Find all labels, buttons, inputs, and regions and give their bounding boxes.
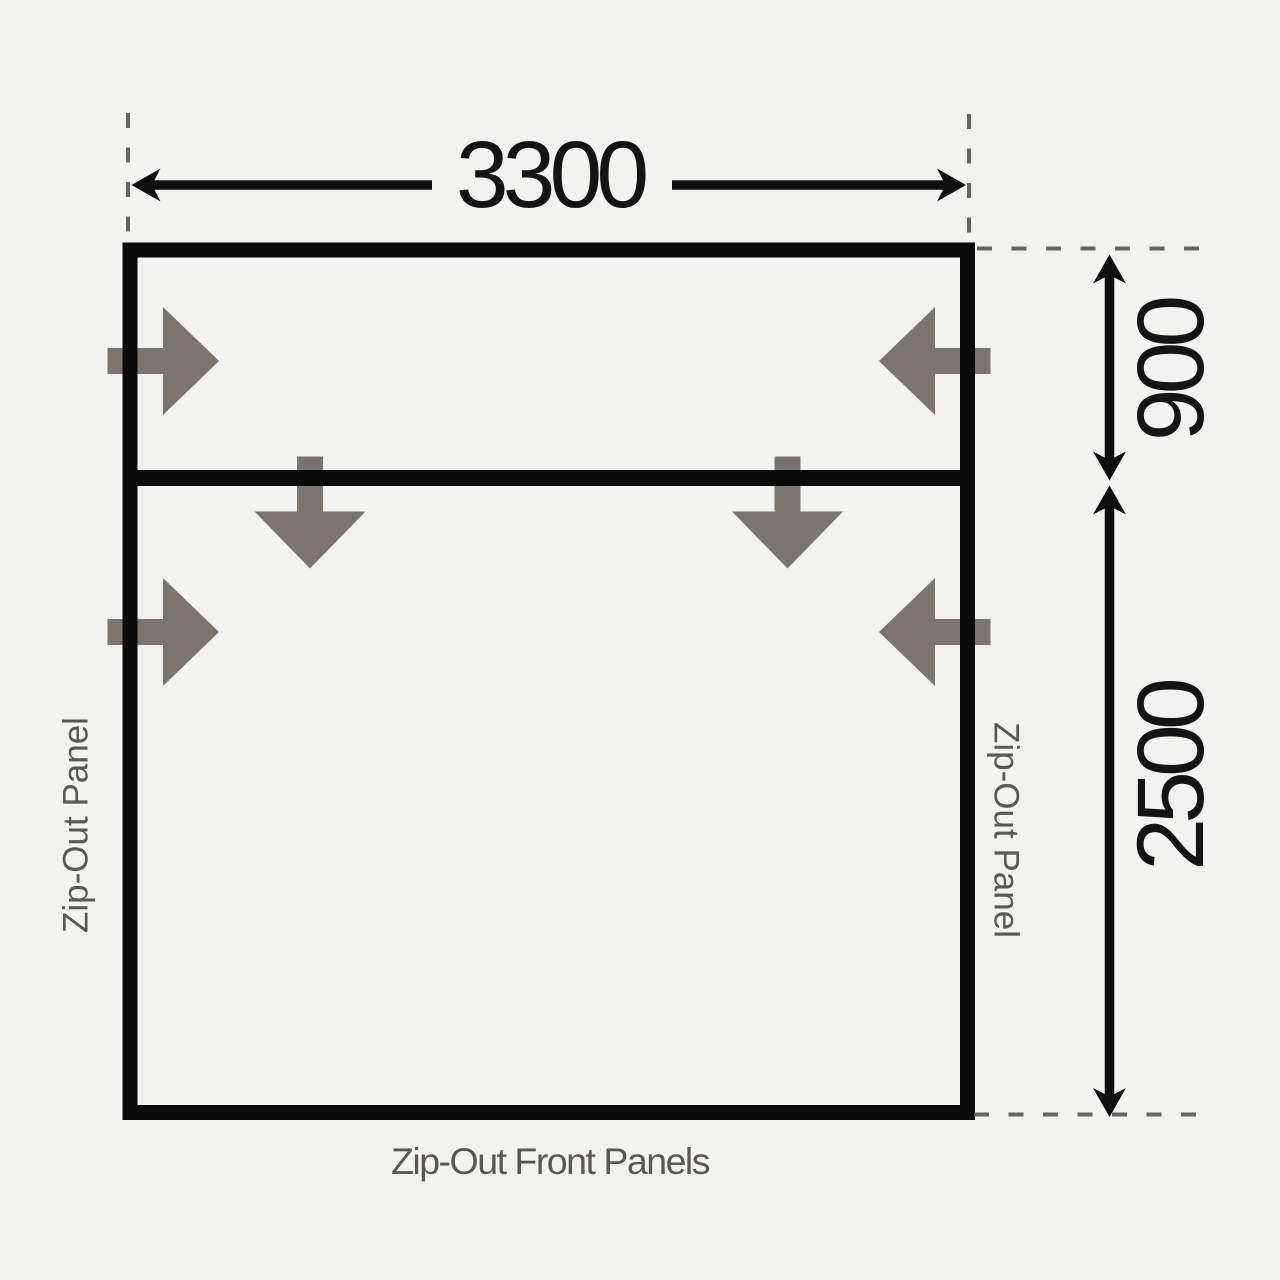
svg-text:900: 900: [1118, 298, 1224, 442]
svg-text:2500: 2500: [1118, 680, 1224, 871]
svg-text:3300: 3300: [456, 122, 647, 228]
svg-text:Zip-Out Panel: Zip-Out Panel: [57, 717, 96, 933]
svg-text:Zip-Out Front Panels: Zip-Out Front Panels: [391, 1140, 710, 1182]
svg-text:Zip-Out Panel: Zip-Out Panel: [987, 722, 1026, 938]
